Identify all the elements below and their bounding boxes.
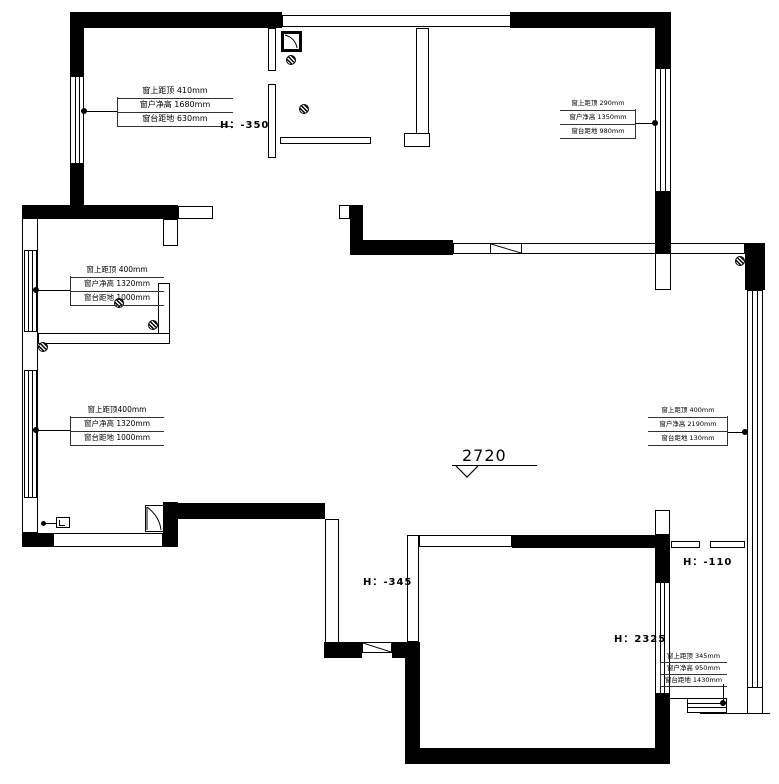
wall-jamb-d xyxy=(655,510,670,535)
leader-dot xyxy=(652,120,658,126)
floor-drain-icon xyxy=(286,55,296,65)
annotation-row: 窗上距顶 290mm xyxy=(560,97,636,111)
door-leaf-icon xyxy=(145,505,164,532)
window-annotation-top-left: 窗上距顶 410mm 窗户净高 1680mm 窗台距地 630mm xyxy=(117,85,233,127)
floor-plan-canvas: 窗上距顶 410mm 窗户净高 1680mm 窗台距地 630mm 窗上距顶 2… xyxy=(0,0,779,784)
wall-black-bottom-a xyxy=(324,642,362,658)
floor-drain-icon xyxy=(735,256,745,266)
wall-thin-hall-partition xyxy=(280,137,371,144)
opening-diagonal-icon xyxy=(362,642,392,653)
annotation-row: 窗户净高 1320mm xyxy=(70,418,164,432)
opening-diagonal-icon xyxy=(490,243,522,254)
wall-thin-wc-partition-h xyxy=(38,333,170,344)
wall-thin-bedroom-partition xyxy=(416,28,429,134)
wall-black-door-stub xyxy=(163,502,178,547)
window-bedroom2-right xyxy=(655,67,671,193)
level-marker-value: 2720 xyxy=(462,446,507,465)
wall-black-top-left xyxy=(70,12,282,28)
annotation-row: 窗上距顶 400mm xyxy=(648,404,728,418)
annotation-row: 窗上距顶400mm xyxy=(70,404,164,418)
wall-black-right-upper xyxy=(655,12,671,69)
leader-line xyxy=(37,290,70,291)
height-label-room: H：2325 xyxy=(614,630,666,645)
annotation-row: 窗户净高 2190mm xyxy=(648,418,728,432)
window-annotation-right-mid: 窗上距顶 400mm 窗户净高 2190mm 窗台距地 130mm xyxy=(648,404,728,446)
balcony-edge-line xyxy=(762,688,763,714)
wall-black-room-right-a xyxy=(655,535,670,582)
wall-black-entry-h xyxy=(178,503,325,519)
window-annotation-left-mid: 窗上距顶 400mm 窗户净高 1320mm 窗台距地 1000mm xyxy=(70,264,164,306)
wall-thin-balcony-b xyxy=(710,541,745,548)
wall-black-right-mid xyxy=(655,191,671,253)
wall-thin-room-top xyxy=(419,535,512,547)
balcony-edge-line xyxy=(700,713,770,714)
annotation-row: 窗户净高 1320mm xyxy=(70,278,164,292)
gas-meter-icon xyxy=(56,517,70,528)
wall-thin-hall-left-upper xyxy=(268,28,276,71)
annotation-row: 窗户净高 1350mm xyxy=(560,111,636,125)
wall-jamb-b xyxy=(163,219,178,246)
fixture-line xyxy=(46,523,56,524)
annotation-row: 窗上距顶 410mm xyxy=(117,85,233,99)
annotation-row: 窗台距地 980mm xyxy=(560,125,636,139)
leader-dot xyxy=(742,429,748,435)
window-annotation-left-lower: 窗上距顶400mm 窗户净高 1320mm 窗台距地 1000mm xyxy=(70,404,164,446)
level-marker-triangle-icon xyxy=(455,465,479,478)
wall-jamb-e xyxy=(339,205,350,219)
leader-line xyxy=(84,111,117,112)
wall-thin-corridor-left xyxy=(325,519,339,643)
annotation-row: 窗上距顶 345mm xyxy=(660,651,727,663)
wall-jamb-a xyxy=(178,206,213,219)
annotation-row: 窗户净高 1680mm xyxy=(117,99,233,113)
wall-thin-partition-foot xyxy=(404,133,430,147)
leader-line xyxy=(37,430,70,431)
flue-shaft-icon xyxy=(281,31,302,52)
window-annotation-top-right: 窗上距顶 290mm 窗户净高 1350mm 窗台距地 980mm xyxy=(560,97,636,139)
height-label-entry: H：-345 xyxy=(363,573,412,588)
wall-black-room-left xyxy=(405,642,420,764)
window-left-lower xyxy=(24,370,37,498)
leader-dot xyxy=(720,700,726,706)
wall-black-room-top xyxy=(512,535,670,548)
wall-black-right-corner xyxy=(745,243,765,290)
annotation-row: 窗台距地 1000mm xyxy=(70,432,164,446)
window-bedroom1-left xyxy=(70,75,84,165)
wall-thin-top-center xyxy=(282,15,512,27)
wall-black-bottom-main xyxy=(405,748,670,764)
annotation-row: 窗户净高 950mm xyxy=(660,663,727,675)
floor-drain-icon xyxy=(148,320,158,330)
window-balcony-tall xyxy=(747,290,763,688)
wall-black-top-right xyxy=(510,12,671,28)
height-label-hall: H：-350 xyxy=(220,116,269,131)
height-label-balcony: H：-110 xyxy=(683,553,732,568)
window-annotation-bottom-right: 窗上距顶 345mm 窗户净高 950mm 窗台距地 1430mm xyxy=(660,651,727,687)
wall-black-leftroom-top xyxy=(22,205,178,219)
annotation-row: 窗台距地 130mm xyxy=(648,432,728,446)
wall-thin-entry-bottom xyxy=(53,533,163,547)
annotation-row: 窗台距地 1000mm xyxy=(70,292,164,306)
wall-thin-room-left xyxy=(407,535,419,642)
annotation-row: 窗上距顶 400mm xyxy=(70,264,164,278)
balcony-edge-line xyxy=(747,688,748,714)
annotation-row: 窗台距地 630mm xyxy=(117,113,233,127)
floor-drain-icon xyxy=(38,342,48,352)
wall-thin-balcony-a xyxy=(671,541,700,548)
wall-black-bottom-b xyxy=(392,642,420,658)
wall-black-center-stub xyxy=(350,205,363,241)
floor-drain-icon xyxy=(299,104,309,114)
annotation-row: 窗台距地 1430mm xyxy=(660,675,727,687)
balcony-edge-line xyxy=(670,698,688,699)
wall-black-leftroom-corner xyxy=(22,533,53,547)
wall-black-left-upper xyxy=(70,12,84,77)
wall-black-center-h xyxy=(350,240,453,255)
wall-jamb-c xyxy=(655,253,671,290)
